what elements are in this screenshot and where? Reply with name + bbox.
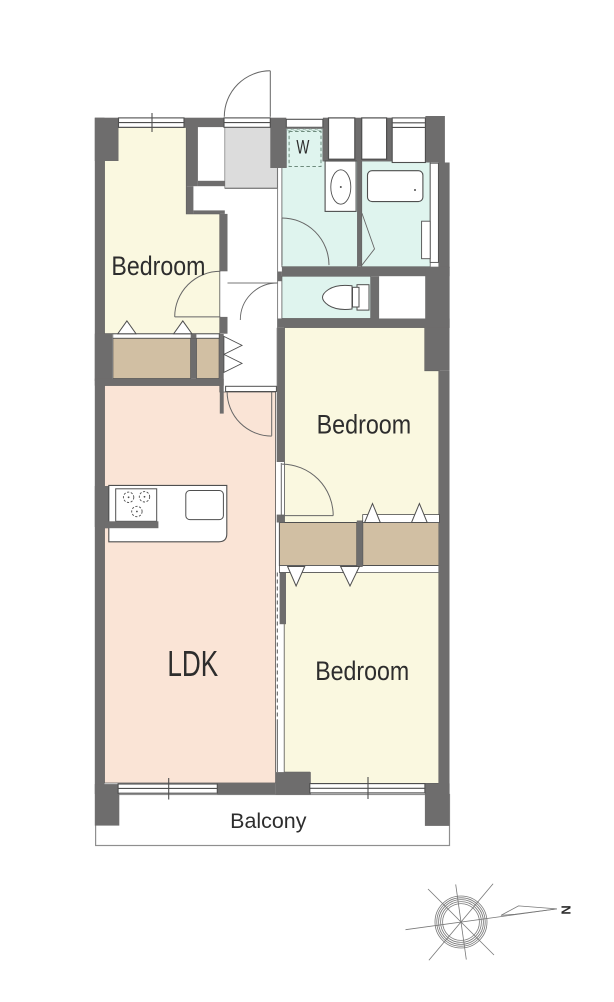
svg-text:Bedroom: Bedroom xyxy=(111,251,205,281)
svg-text:W: W xyxy=(296,138,309,159)
svg-text:Bedroom: Bedroom xyxy=(315,656,409,686)
svg-text:N: N xyxy=(559,905,574,914)
svg-text:Bedroom: Bedroom xyxy=(317,409,412,439)
svg-text:Balcony: Balcony xyxy=(230,809,307,833)
svg-text:LDK: LDK xyxy=(167,643,218,684)
